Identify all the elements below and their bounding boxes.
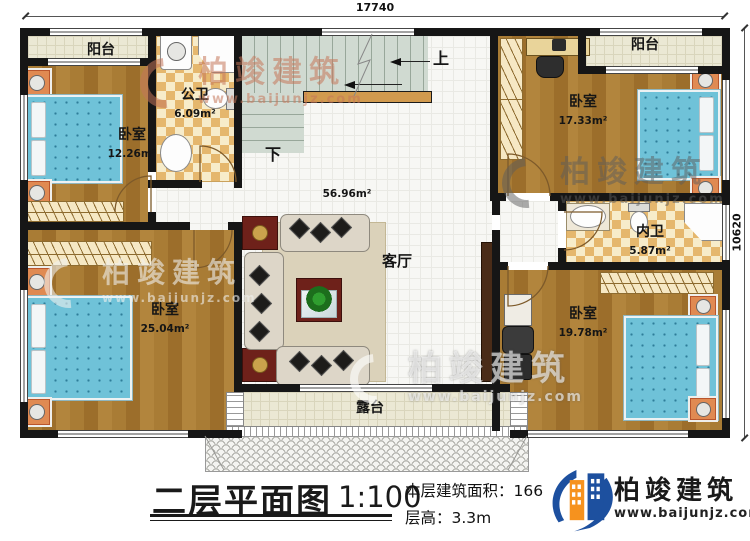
dimension-line-top <box>25 16 725 17</box>
wall-living-bottom-a <box>234 384 300 392</box>
stairs-arrow-line-2 <box>354 84 402 85</box>
room-label-bedroom-tr: 卧室17.33m² <box>547 92 619 129</box>
window <box>50 28 142 36</box>
washing-machine <box>160 32 192 70</box>
wall-innerbath-bottom <box>550 262 730 270</box>
wall-bedroom-br-top-a <box>500 262 508 270</box>
wardrobe <box>600 272 714 294</box>
room-label-balcony-left: 阳台 <box>70 40 132 58</box>
stairs-arrow-2 <box>344 81 355 89</box>
dresser <box>504 294 532 326</box>
desk-chair <box>536 56 564 78</box>
floor-plan-page: 阳台 阳台 卧室12.26m² 公卫6.09m² 卧室17.33m² 内卫5.8… <box>0 0 750 541</box>
wardrobe <box>500 38 523 160</box>
wall-corridor-left-a <box>492 201 500 215</box>
stairs-handrail <box>303 91 432 103</box>
window <box>722 310 730 418</box>
wall-bedroom-br-left <box>492 230 500 431</box>
wall-bedrooms-left-divider-a <box>20 222 190 230</box>
window <box>722 205 730 260</box>
chair <box>502 326 534 354</box>
bed <box>638 90 720 180</box>
window <box>48 58 140 66</box>
dimension-right: 10620 <box>731 208 744 258</box>
corridor-floor <box>500 201 558 262</box>
nightstand <box>690 398 716 420</box>
nightstand <box>690 296 716 316</box>
bed <box>26 296 132 400</box>
wall-bedroom-br-top-b <box>548 262 560 270</box>
window <box>528 430 688 438</box>
room-label-bath-inner: 内卫5.87m² <box>618 222 682 259</box>
dimension-tick <box>741 434 748 441</box>
side-table <box>242 216 278 250</box>
wall-innerbath-left-a <box>558 201 566 211</box>
wardrobe <box>22 201 124 222</box>
room-label-terrace: 露台 <box>348 398 392 416</box>
room-label-bath-public: 公卫6.09m² <box>165 85 225 122</box>
stairs-arrow-1 <box>390 58 401 66</box>
plant <box>306 286 332 312</box>
brand-logo-icon <box>543 462 621 536</box>
window <box>300 384 432 392</box>
window <box>722 80 730 180</box>
room-label-bedroom-br: 卧室19.78m² <box>548 304 618 341</box>
dimension-tick <box>721 12 728 19</box>
sink <box>570 205 606 228</box>
side-table <box>242 348 278 382</box>
stairs-lower-flight <box>242 93 304 153</box>
wall-bedroom-tr-bottom-b <box>550 193 730 201</box>
brand-name: 柏竣建筑 <box>614 470 738 507</box>
dimension-top: 17740 <box>348 1 402 14</box>
brand-url: www.baijunjz.com <box>614 506 750 521</box>
storage-box <box>504 354 532 380</box>
dimension-line-right <box>744 28 745 438</box>
wall-bath-right <box>234 28 242 188</box>
window <box>20 95 28 180</box>
wall-bedroom-tr-left <box>490 28 498 201</box>
window <box>58 430 188 438</box>
floor-height-line: 层高：3.3m <box>405 506 491 528</box>
desk-lamp <box>552 39 566 51</box>
stairs-arrow-line-1 <box>400 61 430 62</box>
stair-down-label: 下 <box>262 146 284 164</box>
wall-bedroom-bl-right <box>234 222 242 392</box>
room-label-bedroom-bl: 卧室25.04m² <box>130 300 200 337</box>
wall-bath-bottom <box>148 180 202 188</box>
stair-up-label: 上 <box>430 50 452 68</box>
lower-roof-tiles <box>205 436 529 472</box>
wardrobe <box>26 241 152 266</box>
title-underline-thin <box>150 520 392 521</box>
room-label-balcony-right: 阳台 <box>614 35 676 53</box>
room-label-bedroom-tl: 卧室12.26m² <box>97 125 167 162</box>
window <box>20 290 28 402</box>
wall-bedroom-tr-bottom-a <box>490 193 506 201</box>
window <box>606 66 698 74</box>
living-area-value: 56.96m² <box>320 183 374 201</box>
title-underline-thick <box>150 514 392 517</box>
room-label-living: 客厅 <box>372 252 422 270</box>
window <box>322 28 414 36</box>
